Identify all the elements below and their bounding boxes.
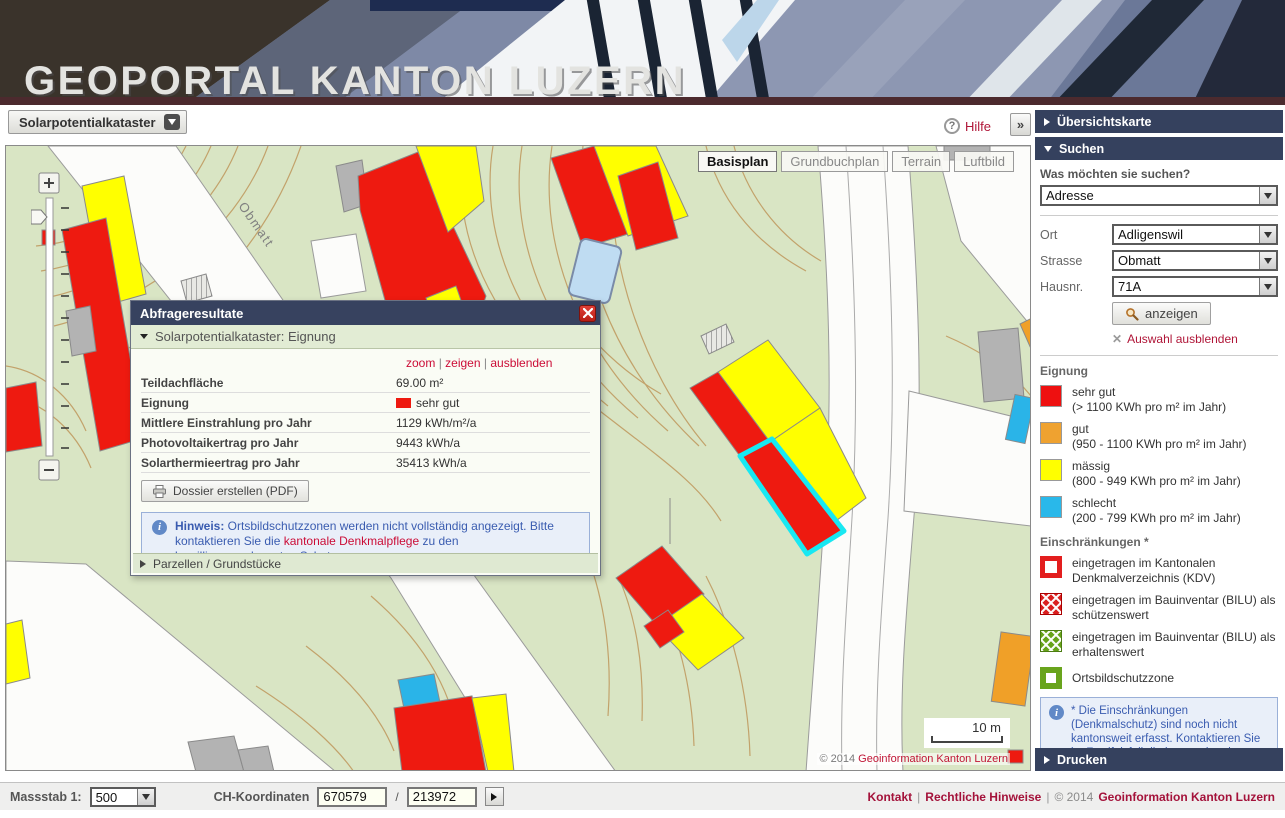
popup-section-title: Solarpotentialkataster: Eignung: [155, 329, 336, 344]
scale-bar: 10 m: [924, 718, 1010, 748]
hausnr-select[interactable]: 71A: [1112, 276, 1278, 297]
info-icon: i: [152, 520, 167, 535]
legend-text: eingetragen im Kantonalen Denkmalverzeic…: [1072, 556, 1278, 585]
sidebar-collapse-button[interactable]: »: [1010, 113, 1031, 136]
row-label: Mittlere Einstrahlung pro Jahr: [141, 416, 396, 430]
row-label: Eignung: [141, 396, 396, 410]
zoom-in-button[interactable]: [39, 173, 59, 193]
scale-bar-line: [931, 736, 1003, 743]
denkmalpflege-link[interactable]: kantonale Denkmalpflege: [284, 534, 419, 548]
result-row: Eignung sehr gut: [141, 393, 590, 413]
strasse-select[interactable]: Obmatt: [1112, 250, 1278, 271]
popup-body: zoom | zeigen | ausblenden Teildachfläch…: [131, 349, 600, 571]
help-label: Hilfe: [965, 119, 991, 134]
legend-swatch-erhaltenswert: [1040, 630, 1062, 652]
coord-y-input[interactable]: [407, 787, 477, 807]
zoom-slider-ticks: [61, 208, 69, 448]
info-icon: i: [1049, 705, 1064, 720]
popup-section-header[interactable]: Solarpotentialkataster: Eignung: [131, 325, 600, 349]
legend-swatch-sehr-gut: [1040, 385, 1062, 407]
page-title: GEOPORTAL KANTON LUZERN: [24, 59, 686, 103]
section-label: Übersichtskarte: [1057, 115, 1152, 129]
query-results-popup: Abfrageresultate Solarpotentialkataster:…: [130, 300, 601, 576]
field-row-hausnr: Hausnr. 71A: [1040, 276, 1278, 297]
pipe-separator: |: [484, 356, 487, 370]
divider: [1040, 355, 1278, 356]
pipe-separator: |: [1046, 790, 1049, 804]
pipe-separator: |: [917, 790, 920, 804]
legend-swatch-ortsbildschutzzone: [1040, 667, 1062, 689]
chevron-right-icon: [140, 560, 146, 568]
row-label: Photovoltaikertrag pro Jahr: [141, 436, 396, 450]
legend-item: gut(950 - 1100 KWh pro m² im Jahr): [1040, 422, 1278, 451]
ort-value: Adligenswil: [1118, 227, 1183, 242]
layer-button-terrain[interactable]: Terrain: [892, 151, 950, 172]
zoom-slider-track[interactable]: [46, 198, 53, 456]
field-row-strasse: Strasse Obmatt: [1040, 250, 1278, 271]
row-label: Teildachfläche: [141, 376, 396, 390]
legend-item: mässig(800 - 949 KWh pro m² im Jahr): [1040, 459, 1278, 488]
close-button[interactable]: [579, 305, 596, 322]
geoinformation-link[interactable]: Geoinformation Kanton Luzern: [1098, 790, 1275, 804]
statusbar: Massstab 1: 500 CH-Koordinaten / Kontakt…: [0, 782, 1285, 810]
scale-select[interactable]: 500: [90, 787, 156, 807]
x-icon: ✕: [1112, 332, 1122, 346]
coord-x-input[interactable]: [317, 787, 387, 807]
chevron-down-icon: [1044, 146, 1052, 152]
hide-selection-label: Auswahl ausblenden: [1127, 332, 1238, 346]
ort-select[interactable]: Adligenswil: [1112, 224, 1278, 245]
legend-restrictions-title: Einschränkungen *: [1040, 535, 1278, 549]
scale-label: Massstab 1:: [10, 790, 82, 804]
legend-text: schlecht(200 - 799 KWh pro m² im Jahr): [1072, 496, 1241, 525]
layer-button-basisplan[interactable]: Basisplan: [698, 151, 777, 172]
row-value: 1129 kWh/m²/a: [396, 416, 476, 430]
banner-image: GEOPORTAL KANTON LUZERN GEOPORTAL KANTON…: [0, 0, 1285, 105]
section-header-uebersichtskarte[interactable]: Übersichtskarte: [1035, 110, 1283, 133]
field-row-ort: Ort Adligenswil: [1040, 224, 1278, 245]
legend-text: mässig(800 - 949 KWh pro m² im Jahr): [1072, 459, 1241, 488]
pipe-separator: |: [439, 356, 442, 370]
row-value: 69.00 m²: [396, 376, 443, 390]
hide-selection-link[interactable]: ✕ Auswahl ausblenden: [1112, 332, 1278, 346]
result-row: Teildachfläche 69.00 m²: [141, 373, 590, 393]
zeigen-link[interactable]: zeigen: [445, 356, 480, 370]
zoom-link[interactable]: zoom: [406, 356, 435, 370]
strasse-value: Obmatt: [1118, 253, 1161, 268]
result-row: Mittlere Einstrahlung pro Jahr 1129 kWh/…: [141, 413, 590, 433]
legend-text: sehr gut(> 1100 KWh pro m² im Jahr): [1072, 385, 1226, 414]
legend-text: gut(950 - 1100 KWh pro m² im Jahr): [1072, 422, 1247, 451]
show-button-label: anzeigen: [1145, 306, 1198, 321]
chevron-down-icon: [140, 334, 148, 339]
field-label: Strasse: [1040, 254, 1112, 268]
close-icon: [583, 308, 593, 318]
printer-icon: [152, 485, 167, 498]
legend-text: eingetragen im Bauinventar (BILU) als sc…: [1072, 593, 1278, 622]
hint-bold: Hinweis:: [175, 519, 224, 533]
field-label: Hausnr.: [1040, 280, 1112, 294]
section-header-drucken[interactable]: Drucken: [1035, 748, 1283, 771]
chevron-down-icon: [1259, 226, 1276, 243]
row-value: 9443 kWh/a: [396, 436, 460, 450]
parcels-section-header[interactable]: Parzellen / Grundstücke: [133, 553, 598, 573]
field-label: Ort: [1040, 228, 1112, 242]
scale-value: 500: [96, 790, 118, 805]
show-button[interactable]: anzeigen: [1112, 302, 1211, 325]
catalog-dropdown-label: Solarpotentialkataster: [19, 115, 156, 130]
chevron-down-icon: [137, 789, 154, 805]
search-panel: Was möchten sie suchen? Adresse Ort Adli…: [1035, 160, 1283, 770]
legend-item: eingetragen im Bauinventar (BILU) als sc…: [1040, 593, 1278, 622]
legend-swatch-schuetzenswert: [1040, 593, 1062, 615]
footer-links: Kontakt | Rechtliche Hinweise | © 2014 G…: [867, 790, 1275, 804]
legend-eignung-title: Eignung: [1040, 364, 1278, 378]
chevron-down-icon: [1259, 187, 1276, 204]
row-value: 35413 kWh/a: [396, 456, 467, 470]
legend-swatch-gut: [1040, 422, 1062, 444]
layer-switcher: Basisplan Grundbuchplan Terrain Luftbild: [698, 151, 1014, 172]
legend-item: eingetragen im Bauinventar (BILU) als er…: [1040, 630, 1278, 659]
ausblenden-link[interactable]: ausblenden: [490, 356, 552, 370]
create-dossier-button[interactable]: Dossier erstellen (PDF): [141, 480, 309, 502]
geoportal-page: GEOPORTAL KANTON LUZERN GEOPORTAL KANTON…: [0, 0, 1285, 818]
row-label: Solarthermieertrag pro Jahr: [141, 456, 396, 470]
legend-item: sehr gut(> 1100 KWh pro m² im Jahr): [1040, 385, 1278, 414]
search-type-select[interactable]: Adresse: [1040, 185, 1278, 206]
layer-button-luftbild[interactable]: Luftbild: [954, 151, 1014, 172]
parcels-section-label: Parzellen / Grundstücke: [153, 557, 281, 571]
coords-separator: /: [395, 790, 398, 804]
zoom-out-button[interactable]: [39, 460, 59, 480]
create-dossier-label: Dossier erstellen (PDF): [173, 484, 298, 498]
chevron-down-icon: [1259, 252, 1276, 269]
magnifier-icon: [1125, 307, 1139, 321]
legend-item: schlecht(200 - 799 KWh pro m² im Jahr): [1040, 496, 1278, 525]
suitability-swatch: [396, 398, 411, 408]
coords-label: CH-Koordinaten: [214, 790, 310, 804]
help-link[interactable]: ? Hilfe: [944, 118, 991, 134]
layer-button-grundbuchplan[interactable]: Grundbuchplan: [781, 151, 888, 172]
search-type-value: Adresse: [1046, 188, 1094, 203]
zoom-control: [31, 170, 101, 490]
rechtliche-hinweise-link[interactable]: Rechtliche Hinweise: [925, 790, 1041, 804]
divider: [1040, 215, 1278, 216]
chevron-right-icon: [1044, 756, 1050, 764]
catalog-dropdown-button[interactable]: Solarpotentialkataster: [8, 110, 187, 134]
legend-text: Ortsbildschutzzone: [1072, 667, 1174, 689]
legend-swatch-maessig: [1040, 459, 1062, 481]
search-question-label: Was möchten sie suchen?: [1040, 167, 1278, 181]
chevron-down-icon: [1259, 278, 1276, 295]
copyright-link[interactable]: Geoinformation Kanton Luzern: [858, 753, 1008, 765]
chevron-down-icon: [164, 114, 180, 130]
go-to-coords-button[interactable]: [485, 787, 504, 806]
section-label: Suchen: [1059, 142, 1104, 156]
result-row: Solarthermieertrag pro Jahr 35413 kWh/a: [141, 453, 590, 473]
row-value: sehr gut: [396, 396, 459, 410]
legend-swatch-kdv: [1040, 556, 1062, 578]
kontakt-link[interactable]: Kontakt: [867, 790, 912, 804]
popup-titlebar[interactable]: Abfrageresultate: [131, 301, 600, 325]
legend-text: eingetragen im Bauinventar (BILU) als er…: [1072, 630, 1278, 659]
play-icon: [491, 793, 497, 801]
popup-title: Abfrageresultate: [140, 306, 579, 321]
zoom-slider-handle[interactable]: [31, 210, 47, 224]
result-action-links: zoom | zeigen | ausblenden: [406, 354, 590, 373]
section-label: Drucken: [1057, 753, 1107, 767]
chevron-right-icon: [1044, 118, 1050, 126]
copyright-year: © 2014: [819, 753, 855, 765]
section-header-suchen[interactable]: Suchen: [1035, 137, 1283, 160]
hausnr-value: 71A: [1118, 279, 1141, 294]
copyright-year: © 2014: [1054, 790, 1093, 804]
scale-bar-label: 10 m: [931, 720, 1003, 735]
sidebar: Übersichtskarte Suchen Was möchten sie s…: [1035, 110, 1283, 771]
legend-item: Ortsbildschutzzone: [1040, 667, 1278, 689]
result-row: Photovoltaikertrag pro Jahr 9443 kWh/a: [141, 433, 590, 453]
map-copyright: © 2014 Geoinformation Kanton Luzern: [817, 753, 1010, 765]
legend-swatch-schlecht: [1040, 496, 1062, 518]
legend-item: eingetragen im Kantonalen Denkmalverzeic…: [1040, 556, 1278, 585]
suitability-value: sehr gut: [416, 396, 459, 410]
question-mark-icon: ?: [944, 118, 960, 134]
